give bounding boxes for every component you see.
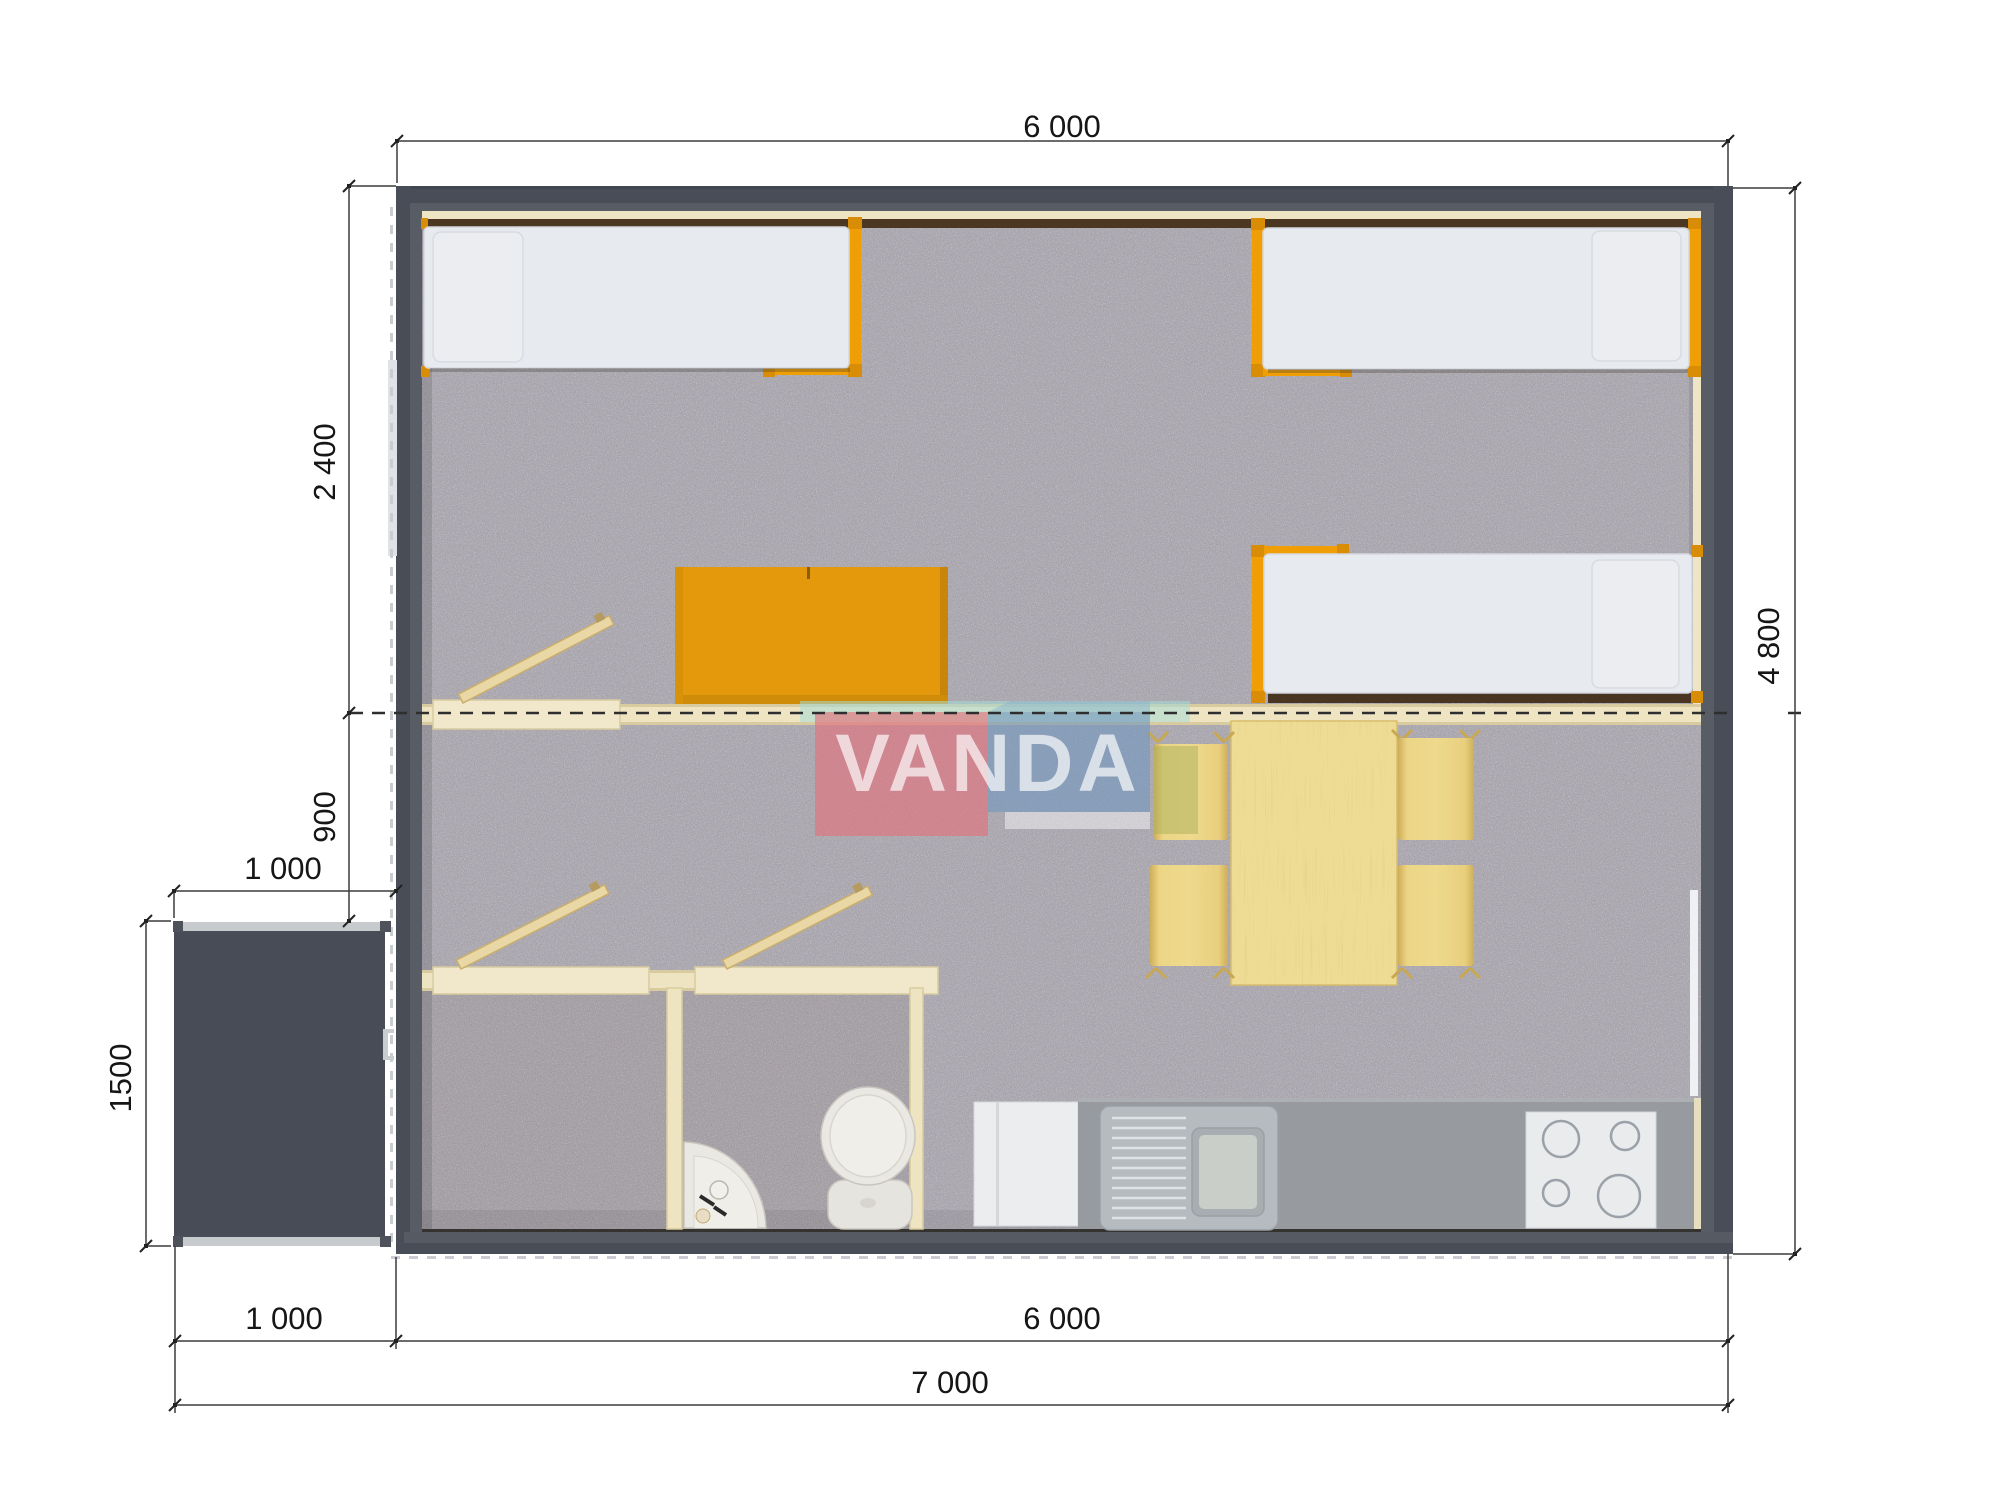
svg-text:1 000: 1 000 — [245, 1301, 323, 1336]
svg-text:4 800: 4 800 — [1751, 607, 1786, 685]
svg-text:900: 900 — [307, 791, 342, 843]
svg-text:2 400: 2 400 — [307, 423, 342, 501]
svg-text:1500: 1500 — [103, 1044, 138, 1113]
svg-text:VANDA: VANDA — [835, 718, 1140, 809]
svg-text:1 000: 1 000 — [244, 851, 322, 886]
svg-text:6 000: 6 000 — [1023, 1301, 1101, 1336]
svg-text:7 000: 7 000 — [911, 1365, 989, 1400]
svg-text:6 000: 6 000 — [1023, 109, 1101, 144]
